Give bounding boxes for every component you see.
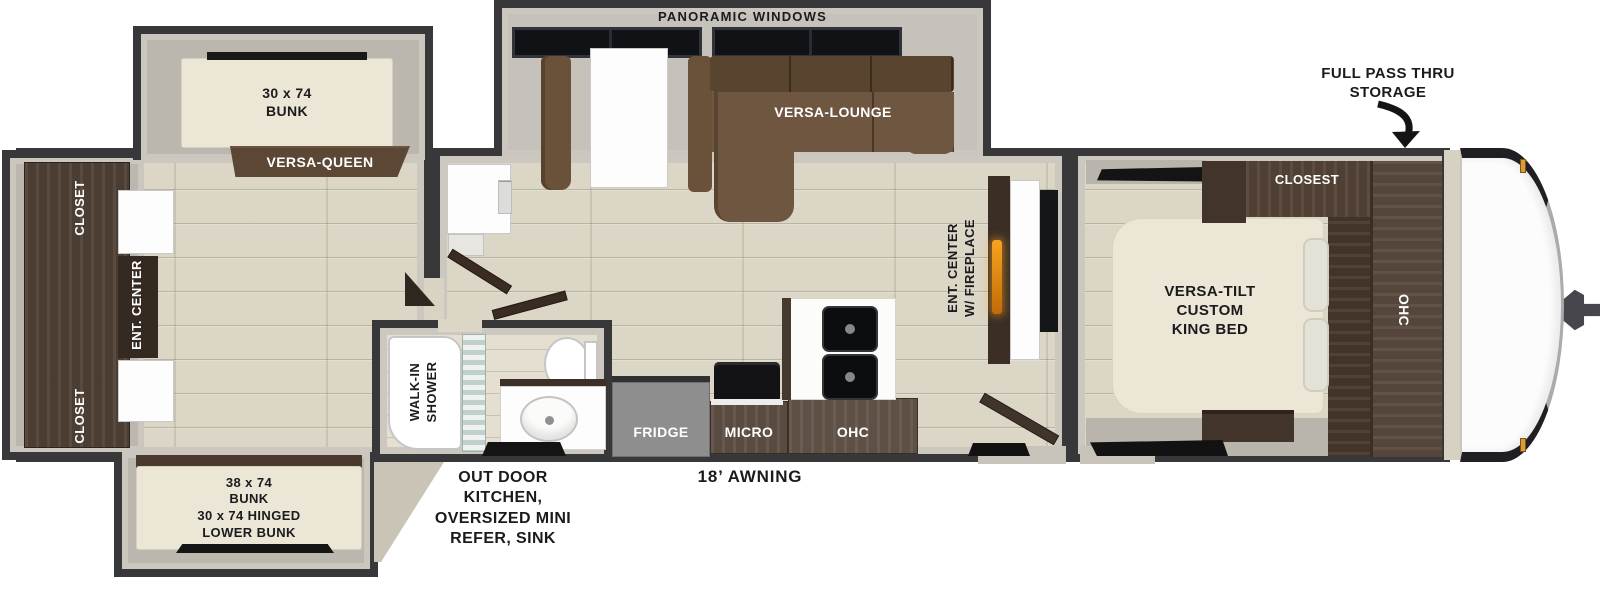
clearance-light-top bbox=[1520, 159, 1526, 173]
lounge-sofa-back bbox=[710, 56, 954, 92]
front-cap bbox=[1460, 148, 1564, 462]
bedroom-closet-left-column bbox=[1202, 161, 1246, 223]
lower-bunk-rail bbox=[176, 544, 334, 553]
bed-foot-bench bbox=[1202, 410, 1294, 442]
closet-bottom-label: CLOSET bbox=[72, 388, 89, 443]
closet-top-label: CLOSET bbox=[72, 180, 89, 235]
floorplan-canvas: CLOSET ENT. CENTER CLOSET 30 x 74 BUNK V… bbox=[0, 0, 1600, 611]
ohc-label: OHC bbox=[788, 424, 918, 442]
micro-label: MICRO bbox=[710, 424, 788, 442]
lounge-left-bench bbox=[541, 56, 571, 190]
hitch-coupler bbox=[1558, 288, 1600, 332]
sink-basin-upper-drain bbox=[845, 324, 855, 334]
wardrobe-white-panel-bottom bbox=[118, 360, 174, 422]
entcenter-shelf bbox=[1010, 180, 1040, 360]
entcenter-tv bbox=[1040, 190, 1058, 332]
upper-bunk-mattress: 30 x 74 BUNK bbox=[181, 58, 393, 148]
closet-top-label-box: CLOSET bbox=[65, 158, 95, 258]
lower-bunk-mattress: 38 x 74 BUNK 30 x 74 HINGED LOWER BUNK bbox=[136, 466, 362, 550]
sink-drain bbox=[545, 416, 554, 425]
ent-center-label-box: ENT. CENTER bbox=[122, 245, 152, 365]
bed-pillow-top bbox=[1303, 238, 1329, 312]
outdoor-kitchen-label: OUT DOOR KITCHEN, OVERSIZED MINI REFER, … bbox=[413, 468, 593, 550]
king-bed-label: VERSA-TILT CUSTOM KING BED bbox=[1120, 282, 1300, 340]
kitchen-sink bbox=[822, 306, 874, 398]
walk-in-shower-label: WALK-IN SHOWER bbox=[407, 362, 440, 423]
entry-step-mat bbox=[968, 443, 1030, 456]
storage-arrow-icon bbox=[1370, 100, 1422, 148]
versa-lounge-label: VERSA-LOUNGE bbox=[758, 104, 908, 122]
fireplace-label-box: ENT. CENTER W/ FIREPLACE bbox=[942, 203, 982, 333]
hall-dresser-drawers bbox=[498, 180, 512, 214]
sink-basin-lower-drain bbox=[845, 372, 855, 382]
lounge-left-arm bbox=[688, 56, 712, 192]
panoramic-windows-label: PANORAMIC WINDOWS bbox=[494, 9, 991, 26]
window-right bbox=[712, 27, 902, 58]
lounge-table bbox=[590, 48, 668, 188]
bed-pillow-bottom bbox=[1303, 318, 1329, 392]
bedroom-ohc-label-box: OHC bbox=[1388, 270, 1418, 350]
pass-thru-label: FULL PASS THRU STORAGE bbox=[1298, 64, 1478, 102]
range-shelf bbox=[711, 399, 783, 405]
bedroom-entry-mat bbox=[1090, 440, 1228, 456]
ent-center-label: ENT. CENTER bbox=[129, 260, 146, 350]
bedroom-closet-label: CLOSEST bbox=[1244, 172, 1370, 189]
upper-bunk-rail bbox=[207, 52, 367, 60]
clearance-light-bottom bbox=[1520, 438, 1526, 452]
fridge-label: FRIDGE bbox=[612, 424, 710, 442]
shower-pleated-door bbox=[462, 334, 486, 452]
fridge bbox=[612, 376, 710, 457]
versa-queen-label: VERSA-QUEEN bbox=[266, 154, 373, 172]
bathroom-door-opening bbox=[438, 319, 482, 332]
counter-gable bbox=[782, 298, 791, 400]
ent-center-fireplace-label: ENT. CENTER W/ FIREPLACE bbox=[945, 219, 978, 317]
lounge-right-return bbox=[906, 92, 954, 154]
sink-basin-upper bbox=[822, 306, 878, 352]
awning-label: 18’ AWNING bbox=[660, 466, 840, 488]
bedroom-ohc-label: OHC bbox=[1394, 294, 1412, 326]
bath-mat bbox=[482, 442, 566, 456]
range bbox=[714, 362, 780, 402]
versa-queen-sofa: VERSA-QUEEN bbox=[230, 146, 410, 177]
upper-bunk-label: 30 x 74 BUNK bbox=[262, 85, 312, 121]
bed-headboard bbox=[1328, 210, 1374, 456]
fireplace-flame bbox=[992, 240, 1002, 314]
closet-bottom-label-box: CLOSET bbox=[65, 366, 95, 466]
lower-bunk-label: 38 x 74 BUNK 30 x 74 HINGED LOWER BUNK bbox=[197, 475, 300, 542]
window-right-mullion bbox=[809, 30, 812, 55]
walk-in-shower-label-box: WALK-IN SHOWER bbox=[409, 337, 439, 447]
sink-basin-lower bbox=[822, 354, 878, 400]
